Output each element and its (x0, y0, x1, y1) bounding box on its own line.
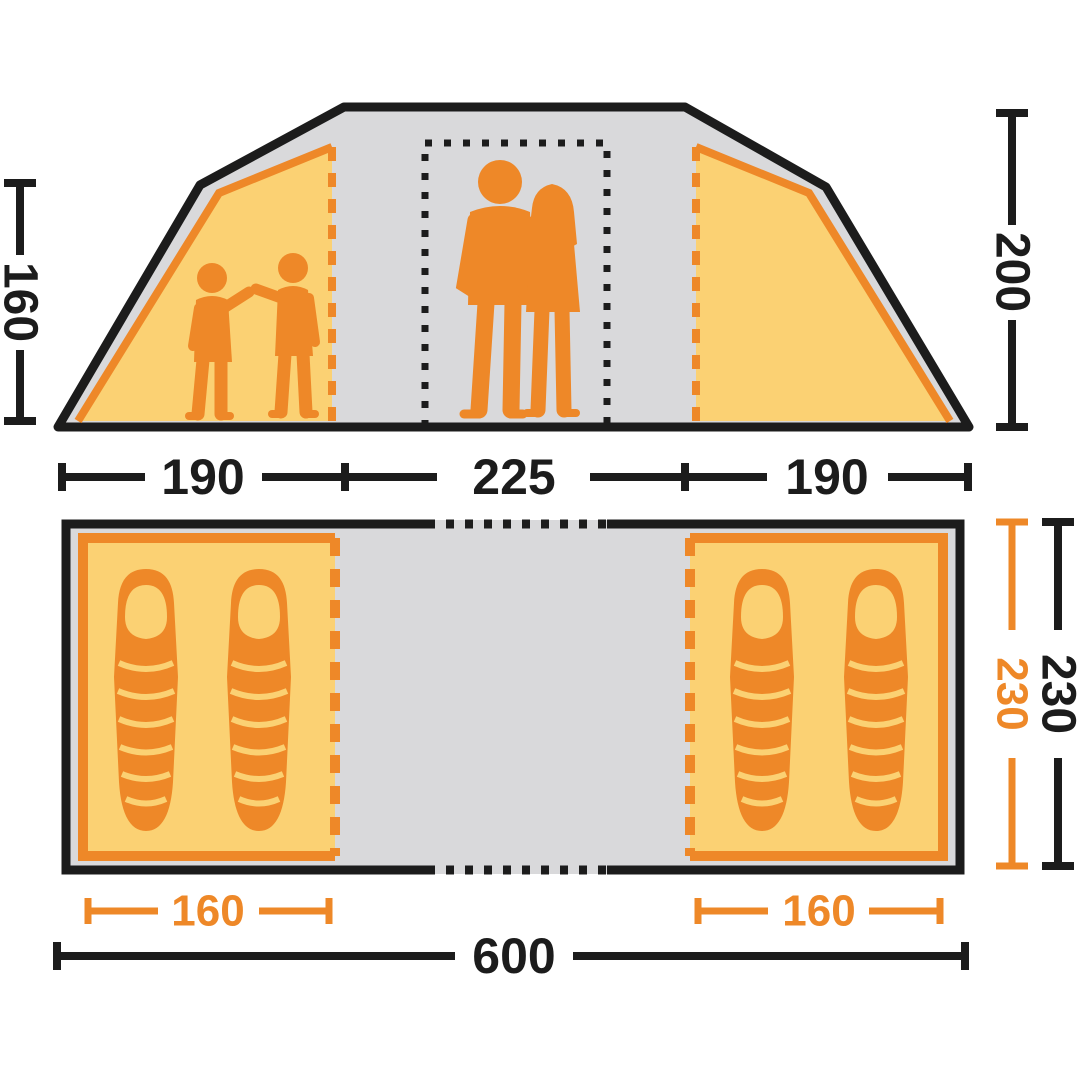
woman-body (526, 240, 580, 312)
sleeping-bag (114, 569, 178, 831)
dim-width-right-label: 190 (785, 449, 868, 505)
dim-inner-height-label: 160 (0, 262, 47, 342)
dim-outer-depth-label: 230 (1032, 654, 1080, 734)
dim-peak-height-label: 200 (986, 232, 1039, 312)
sleeping-bag (730, 569, 794, 831)
sleeping-bag (227, 569, 291, 831)
elevation-view: 160 200 190 225 190 (0, 107, 1039, 505)
child-left-head (197, 263, 227, 293)
dim-width-center-label: 225 (472, 449, 555, 505)
sleeping-bag (844, 569, 908, 831)
diagram-svg: 160 200 190 225 190 (0, 0, 1080, 1077)
right-cabin-floor (690, 533, 948, 861)
dim-right-cabin-width-label: 160 (782, 887, 855, 936)
dim-width-left-label: 190 (161, 449, 244, 505)
tent-dimensions-diagram: 160 200 190 225 190 (0, 0, 1080, 1077)
floor-plan-view: 230 230 160 160 (57, 520, 1080, 984)
dim-total-width-label: 600 (472, 928, 555, 984)
dim-left-cabin-width-label: 160 (171, 887, 244, 936)
child-right-head (278, 253, 308, 283)
man-head (478, 160, 522, 204)
dim-inner-depth-label: 230 (988, 657, 1037, 730)
